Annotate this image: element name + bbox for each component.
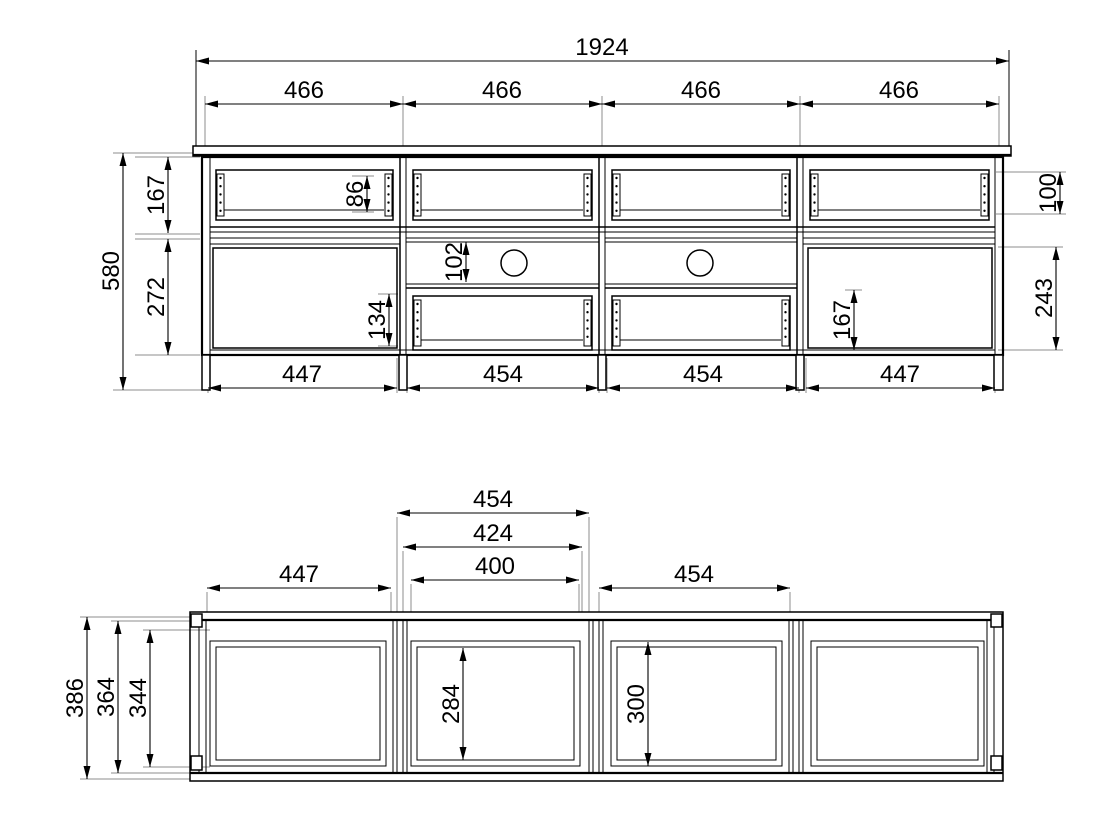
dim-front-section-4: 466 — [879, 77, 919, 104]
front-elevation-view: 1924 466 466 466 466 580 167 272 86 102 … — [98, 34, 1066, 393]
dim-front-section-1: 466 — [284, 77, 324, 104]
dim-drawer-back-height: 86 — [342, 181, 369, 208]
dim-plan-depth-total: 386 — [62, 678, 89, 718]
dim-door-right-height: 243 — [1031, 278, 1058, 318]
dim-drawer-front-height: 100 — [1035, 173, 1062, 213]
front-drawer-row-top — [216, 170, 989, 220]
drawer — [810, 170, 989, 220]
dim-front-bottom-w3: 454 — [683, 361, 723, 388]
cable-hole-left — [501, 250, 527, 276]
plan-outline — [190, 612, 1003, 781]
dim-plan-depth-body: 364 — [93, 677, 120, 717]
front-carcase — [202, 157, 1003, 355]
dim-right-inner-height: 167 — [829, 300, 856, 340]
front-extension-lines — [113, 50, 1066, 393]
dim-plan-section2-pitch: 454 — [473, 486, 513, 513]
drawer — [612, 296, 790, 350]
drawing-sheet: 1924 466 466 466 466 580 167 272 86 102 … — [0, 0, 1113, 835]
dim-plan-section2-clear: 400 — [475, 553, 515, 580]
dim-plan-section3-width: 454 — [674, 561, 714, 588]
dim-front-bottom-w1: 447 — [282, 361, 322, 388]
technical-drawing: 1924 466 466 466 466 580 167 272 86 102 … — [0, 0, 1113, 835]
drawer — [612, 170, 790, 220]
plan-leg-blocks — [191, 614, 1002, 770]
plan-cabinet-structure — [190, 612, 1003, 781]
cable-hole-right — [687, 250, 713, 276]
dim-front-total-width: 1924 — [575, 34, 628, 61]
dim-front-section-3: 466 — [681, 77, 721, 104]
drawer — [413, 296, 592, 350]
plan-section-view: 454 424 400 447 454 386 364 344 284 300 — [62, 486, 1003, 781]
dim-plan-section1-width: 447 — [279, 561, 319, 588]
front-cabinet-structure — [193, 146, 1011, 390]
dim-front-bottom-w4: 447 — [880, 361, 920, 388]
dim-front-bottom-w2: 454 — [483, 361, 523, 388]
plan-compartment-frames — [210, 641, 984, 766]
dim-plan-depth-inner: 344 — [125, 678, 152, 718]
dim-niche-height: 102 — [441, 242, 468, 282]
dim-plan-inner-depth-s3: 300 — [623, 684, 650, 724]
dim-front-height-total: 580 — [98, 251, 125, 291]
plan-dimension-lines — [87, 513, 790, 779]
drawer — [413, 170, 592, 220]
dim-front-section-2: 466 — [482, 77, 522, 104]
dim-drawer2-height: 134 — [364, 300, 391, 340]
front-drawer-row-bottom — [413, 296, 790, 350]
plan-extension-lines — [80, 517, 790, 779]
dim-front-top-row-height: 167 — [143, 175, 170, 215]
dim-plan-inner-depth-s2: 284 — [438, 684, 465, 724]
dim-plan-section2-opening: 424 — [473, 520, 513, 547]
dim-front-door-left-height: 272 — [143, 277, 170, 317]
